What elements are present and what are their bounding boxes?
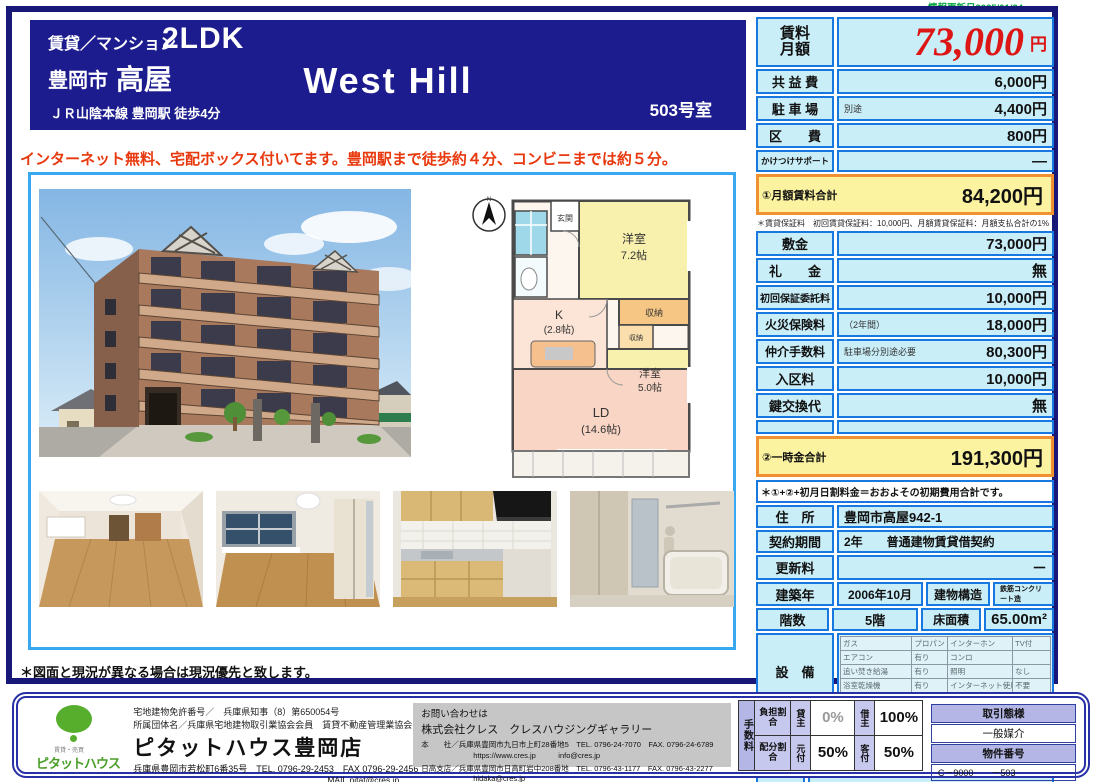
price-panel: 賃料月額 73,000 円 共 益 費 6,000円 駐 車 場 別途4,400…: [756, 15, 1054, 782]
svg-text:(2.8帖): (2.8帖): [544, 323, 575, 336]
fee-vertical-label: 手数料: [738, 700, 755, 771]
plan-disclaimer: ＊図面と現況が異なる場合は現況優先と致します。: [20, 662, 318, 681]
fee-table: 手数料 負担割合 貸主 0% 借主 100% 配分割合 元付 50% 客付 50…: [739, 703, 923, 767]
motozuke-label: 元付: [790, 735, 811, 771]
row-label: 鍵交換代: [756, 393, 834, 418]
built-value: 2006年10月: [837, 582, 923, 606]
table-row: 階数 5階 床面積 65.00m²: [756, 608, 1054, 631]
logo-wordmark: ピタットハウス: [28, 753, 128, 772]
interior-photos-row: [39, 491, 734, 607]
interior-photo-kitchen: [393, 491, 557, 607]
media-box: N: [28, 172, 736, 650]
building-name: West Hill: [30, 60, 746, 102]
label-closet1: 収納: [645, 307, 663, 318]
building-exterior-photo: [39, 189, 411, 457]
label-entrance: 玄関: [557, 213, 573, 223]
main-frame: 賃貸／マンション 2LDK 豊岡市 高屋 West Hill 503号室 ＪＲ山…: [6, 6, 1058, 684]
deal-type-label: 取引態様: [931, 704, 1076, 723]
row-value: 無: [1032, 260, 1047, 281]
split-label: 配分割合: [754, 735, 791, 771]
svg-text:5.0帖: 5.0帖: [638, 381, 662, 394]
monthly-cost-table: 賃料月額 73,000 円 共 益 費 6,000円 駐 車 場 別途4,400…: [756, 17, 1054, 229]
inquiry-branch-mail: hidaka@cres.jp: [421, 774, 723, 782]
rent-amount: 73,000: [914, 22, 1024, 62]
row-value: —: [1032, 153, 1047, 170]
lessor-label: 貸主: [790, 700, 811, 736]
table-row: 駐 車 場 別途4,400円: [756, 96, 1054, 121]
inquiry-web: https://www.cres.jp info@cres.jp: [421, 750, 723, 761]
label-room1: 洋室: [622, 231, 646, 246]
interior-photo-bathroom: [570, 491, 734, 607]
row-label: 初回保証委託料: [756, 285, 834, 310]
agency-info: 宅地建物免許番号／ 兵庫県知事（8）第650054号 所属団体名／兵庫県宅地建物…: [133, 703, 405, 767]
floor-plan: N: [467, 191, 733, 487]
address-value: 豊岡市高屋942-1: [837, 505, 1054, 528]
association: 所属団体名／兵庫県宅地建物取引業協会会員 賃貸不動産管理業協会: [133, 718, 405, 731]
row-value: 無: [1032, 395, 1047, 416]
row-value: 10,000円: [986, 368, 1047, 389]
table-row: 敷金 73,000円: [756, 231, 1054, 256]
interior-photo-living: [39, 491, 203, 607]
table-row: 共 益 費 6,000円: [756, 69, 1054, 94]
renewal-value: －: [1032, 557, 1047, 578]
row-value: 73,000円: [986, 233, 1047, 254]
table-row: 更新料 －: [756, 555, 1054, 580]
table-row: 入区料 10,000円: [756, 366, 1054, 391]
row-label: 床面積: [921, 608, 981, 631]
footer-bar: 賃貸・売買 ピタットハウス 宅地建物免許番号／ 兵庫県知事（8）第650054号…: [12, 692, 1090, 778]
inquiry-title: お問い合わせは: [421, 706, 723, 720]
guarantee-note: ＊賃貸保証料 初回賃貸保証料：10,000円、月額賃貸保証料：月額支払合計の1%: [757, 218, 1054, 229]
label-closet2: 収納: [629, 333, 643, 342]
row-label: かけつけサポート: [756, 150, 834, 172]
row-label: 火災保険料: [756, 312, 834, 337]
inquiry-company: 株式会社クレス クレスハウジングギャラリー: [421, 721, 723, 737]
contract-value: 2年 普通建物賃貸借契約: [837, 530, 1054, 553]
agency-logo: 賃貸・売買 ピタットハウス: [26, 703, 125, 767]
table-row: 初回保証委託料 10,000円: [756, 285, 1054, 310]
burden-label: 負担割合: [754, 700, 791, 736]
property-category: 賃貸／マンション: [48, 30, 176, 54]
inquiry-hq: 本 社／兵庫県豊岡市九日市上町28番地5 TEL. 0796-24-7070 F…: [421, 739, 723, 750]
floor-area-value: 65.00m²: [991, 611, 1047, 628]
row-label: 仲介手数料: [756, 339, 834, 364]
rent-row: 賃料月額 73,000 円: [756, 17, 1054, 67]
initial-total-label: ②一時金合計: [759, 439, 851, 474]
row-label: 共 益 費: [756, 69, 834, 94]
svg-text:N: N: [487, 197, 491, 203]
monthly-total-value: 84,200円: [851, 177, 1051, 212]
row-label: 住 所: [756, 505, 834, 528]
inquiry-branch: 日高支店／兵庫県豊岡市日高町岩中208番地 TEL. 0796-43-1177 …: [421, 763, 723, 774]
lessor-value: 0%: [810, 700, 855, 736]
label-kitchen: K: [555, 308, 563, 322]
row-label: 区 費: [756, 123, 834, 148]
table-row: 礼 金 無: [756, 258, 1054, 283]
motozuke-value: 50%: [810, 735, 855, 771]
svg-text:(14.6帖): (14.6帖): [581, 423, 621, 436]
row-value: 6,000円: [994, 71, 1047, 92]
station-access: ＪＲ山陰本線 豊岡駅 徒歩4分: [50, 103, 220, 122]
initial-cost-table: 敷金 73,000円 礼 金 無 初回保証委託料 10,000円 火災保険料 （…: [756, 231, 1054, 503]
rent-value-cell: 73,000 円: [837, 17, 1054, 67]
row-label: 契約期間: [756, 530, 834, 553]
table-row: 住 所 豊岡市高屋942-1: [756, 505, 1054, 528]
structure-value: 鉄筋コンクリート造: [1000, 584, 1047, 604]
room-number: 503号室: [650, 96, 712, 121]
initial-total-row: ②一時金合計 191,300円: [756, 436, 1054, 477]
table-row: 区 費 800円: [756, 123, 1054, 148]
row-label: 建物構造: [926, 582, 990, 606]
floors-value: 5階: [832, 608, 918, 631]
inquiry-box: お問い合わせは 株式会社クレス クレスハウジングギャラリー 本 社／兵庫県豊岡市…: [413, 703, 731, 767]
table-row: 建築年 2006年10月 建物構造 鉄筋コンクリート造: [756, 582, 1054, 606]
logo-balloon-icon: [56, 705, 92, 733]
table-row: 火災保険料 （2年間）18,000円: [756, 312, 1054, 337]
license-number: 宅地建物免許番号／ 兵庫県知事（8）第650054号: [133, 705, 405, 718]
row-label: 入区料: [756, 366, 834, 391]
row-value: 18,000円: [986, 314, 1047, 335]
table-row: 鍵交換代 無: [756, 393, 1054, 418]
room-layout: 2LDK: [162, 22, 244, 56]
table-row-empty: [756, 420, 1054, 434]
title-banner: 賃貸／マンション 2LDK 豊岡市 高屋 West Hill 503号室 ＪＲ山…: [30, 20, 746, 130]
row-label: 更新料: [756, 555, 834, 580]
rent-label: 賃料月額: [756, 17, 834, 67]
row-label: 階数: [756, 608, 829, 631]
kyakuzuke-label: 客付: [854, 735, 875, 771]
table-row: 仲介手数料 駐車場分別途必要80,300円: [756, 339, 1054, 364]
lessee-label: 借主: [854, 700, 875, 736]
table-row: かけつけサポート —: [756, 150, 1054, 172]
row-value: 4,400円: [994, 98, 1047, 119]
row-value: 80,300円: [986, 341, 1047, 362]
row-label: 建築年: [756, 582, 834, 606]
agency-name: ピタットハウス豊岡店: [133, 732, 405, 762]
row-label: 敷金: [756, 231, 834, 256]
label-ld: LD: [593, 405, 610, 420]
logo-balloon-dot: [70, 735, 77, 742]
row-value: 800円: [1007, 125, 1047, 146]
rent-unit: 円: [1030, 30, 1047, 55]
row-label: 礼 金: [756, 258, 834, 283]
svg-text:7.2帖: 7.2帖: [621, 249, 647, 262]
agency-address-tel: 兵庫県豊岡市若松町6番35号 TEL. 0796-29-2453 FAX 079…: [133, 762, 405, 775]
property-number-label: 物件番号: [931, 744, 1076, 763]
catch-copy: インターネット無料、宅配ボックス付いてます。豊岡駅まで徒歩約４分、コンビニまでは…: [20, 148, 677, 169]
initial-total-value: 191,300円: [851, 439, 1051, 474]
property-number-value: C－9000 －503: [931, 764, 1076, 781]
lessee-value: 100%: [874, 700, 923, 736]
row-value: 10,000円: [986, 287, 1047, 308]
rental-flyer-page: 情報更新日2025/01/24 賃貸／マンション 2LDK 豊岡市 高屋 Wes…: [0, 0, 1100, 782]
label-room2: 洋室: [639, 366, 661, 380]
table-row: 契約期間 2年 普通建物賃貸借契約: [756, 530, 1054, 553]
monthly-total-label: ①月額賃料合計: [759, 177, 851, 212]
kyakuzuke-value: 50%: [874, 735, 923, 771]
monthly-total-row: ①月額賃料合計 84,200円: [756, 174, 1054, 215]
row-label: 駐 車 場: [756, 96, 834, 121]
property-info-table: 住 所 豊岡市高屋942-1 契約期間 2年 普通建物賃貸借契約 更新料 － 建…: [756, 505, 1054, 631]
agency-mail: MAIL.pitat@cres.jp: [133, 775, 405, 782]
deal-box: 取引態様 一般媒介 物件番号 C－9000 －503: [931, 703, 1076, 767]
initial-cost-note: ＊①+②+初月日割料金＝おおよその初期費用合計です。: [756, 480, 1054, 503]
interior-photo-bedroom: [216, 491, 380, 607]
deal-type-value: 一般媒介: [931, 724, 1076, 743]
compass-icon: N: [473, 197, 505, 231]
